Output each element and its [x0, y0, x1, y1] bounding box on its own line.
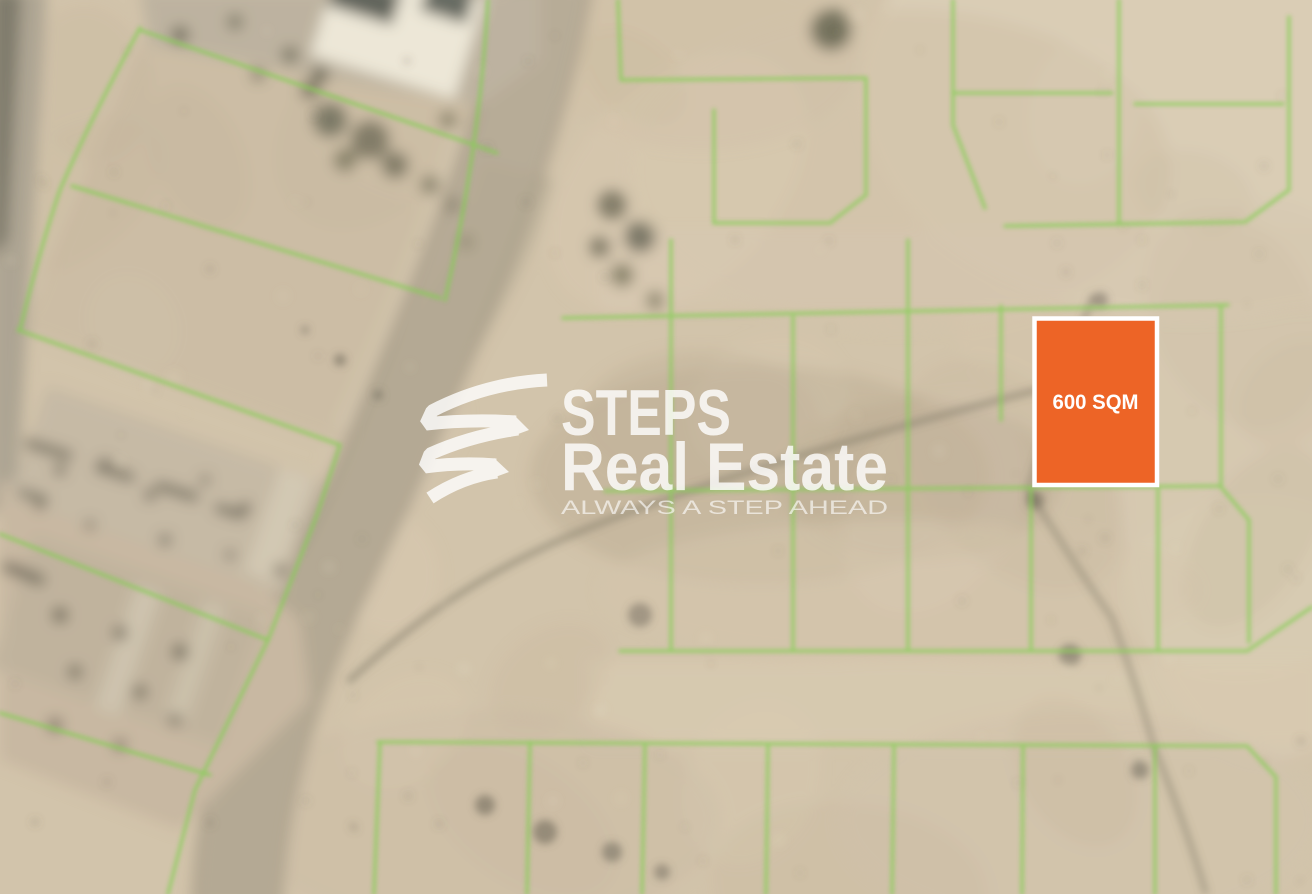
svg-text:ALWAYS A STEP AHEAD: ALWAYS A STEP AHEAD — [561, 498, 888, 519]
svg-text:600 SQM: 600 SQM — [1053, 391, 1139, 414]
svg-text:Real Estate: Real Estate — [561, 429, 888, 505]
